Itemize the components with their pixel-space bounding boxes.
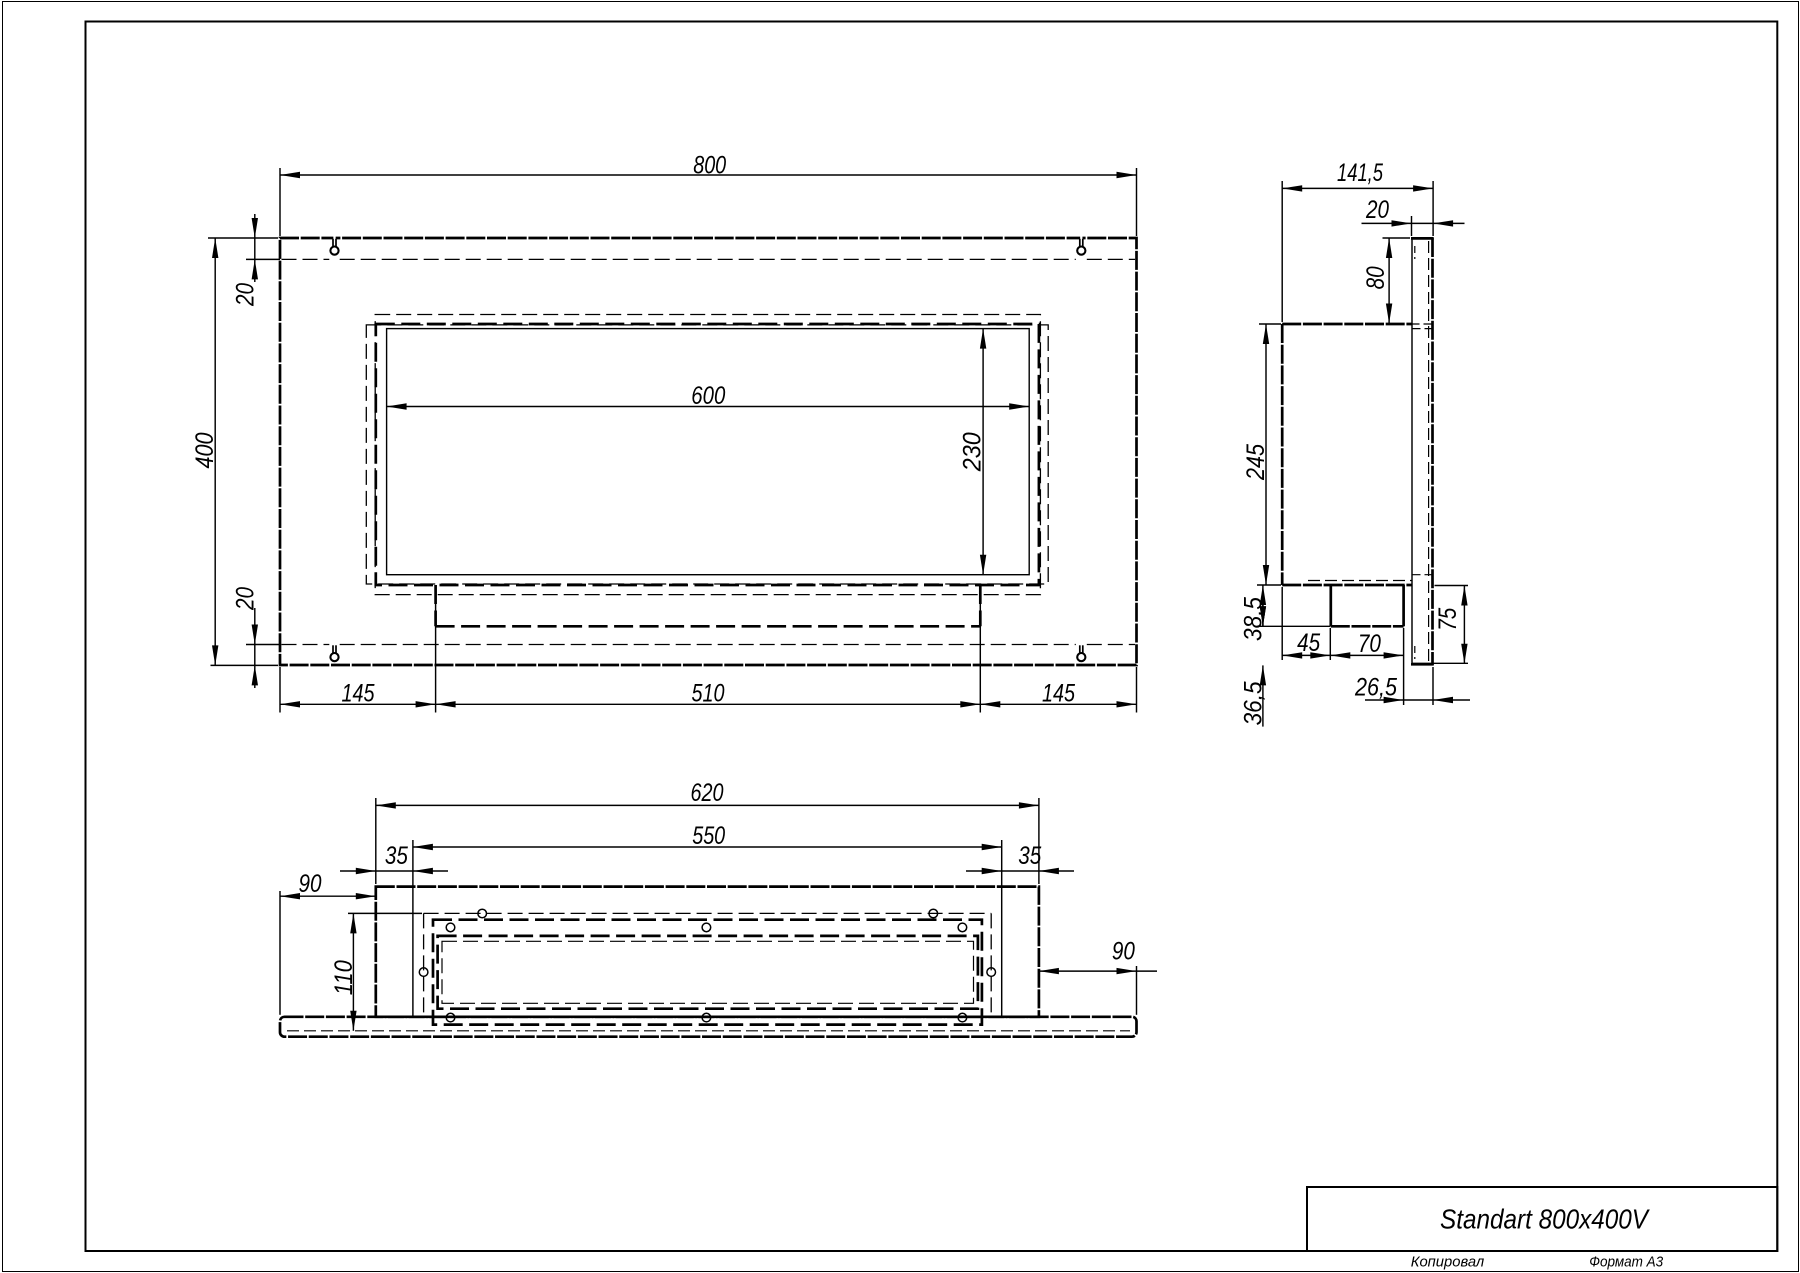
svg-text:600: 600	[691, 382, 725, 410]
svg-text:800: 800	[693, 151, 726, 179]
svg-text:35: 35	[385, 842, 408, 870]
svg-text:20: 20	[232, 283, 260, 307]
svg-text:110: 110	[330, 960, 358, 995]
svg-text:550: 550	[692, 822, 725, 850]
svg-text:Формат А3: Формат А3	[1589, 1254, 1664, 1271]
svg-text:145: 145	[342, 680, 375, 708]
svg-text:245: 245	[1242, 444, 1270, 481]
svg-text:620: 620	[691, 779, 724, 807]
svg-text:90: 90	[1112, 938, 1135, 966]
svg-text:141,5: 141,5	[1337, 159, 1383, 187]
svg-text:70: 70	[1358, 630, 1381, 658]
svg-text:20: 20	[232, 587, 260, 611]
svg-text:Standart 800x400V: Standart 800x400V	[1440, 1204, 1650, 1235]
svg-text:400: 400	[191, 432, 219, 468]
svg-text:26,5: 26,5	[1354, 674, 1397, 702]
svg-text:80: 80	[1362, 266, 1390, 289]
svg-text:45: 45	[1297, 629, 1320, 657]
svg-text:510: 510	[692, 680, 725, 708]
svg-text:20: 20	[1365, 196, 1389, 224]
svg-text:Копировал: Копировал	[1411, 1254, 1485, 1271]
svg-text:230: 230	[959, 432, 987, 472]
svg-text:36,5: 36,5	[1239, 681, 1267, 725]
svg-text:35: 35	[1018, 842, 1041, 870]
svg-text:75: 75	[1434, 608, 1462, 631]
svg-text:90: 90	[299, 870, 322, 898]
svg-text:145: 145	[1042, 680, 1075, 708]
